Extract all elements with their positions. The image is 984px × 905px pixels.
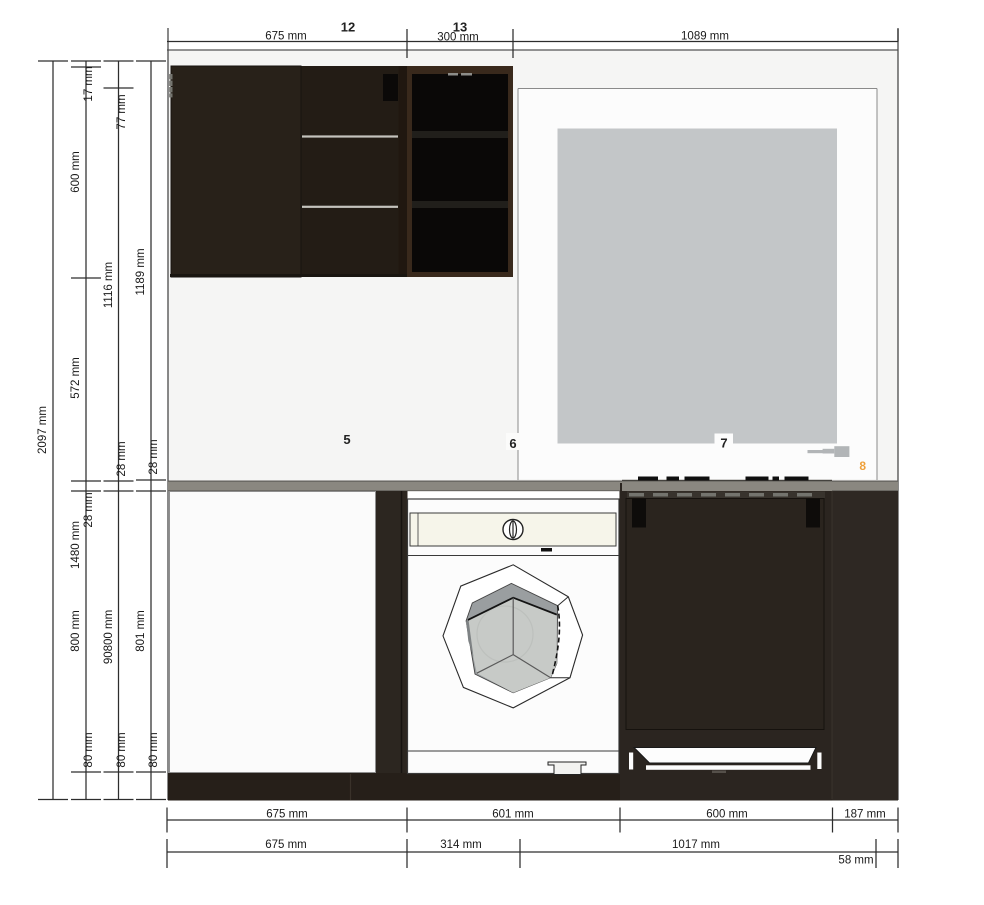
svg-text:28 mm: 28 mm [148, 439, 160, 474]
svg-text:6: 6 [509, 436, 516, 451]
svg-text:600 mm: 600 mm [706, 809, 748, 821]
svg-text:801 mm: 801 mm [135, 610, 147, 652]
svg-text:80 mm: 80 mm [148, 732, 160, 767]
svg-text:7: 7 [720, 436, 727, 451]
svg-text:675 mm: 675 mm [265, 31, 307, 43]
svg-text:77 mm: 77 mm [116, 94, 128, 129]
svg-text:12: 12 [341, 20, 355, 35]
svg-text:1480 mm: 1480 mm [70, 521, 82, 569]
svg-text:1089 mm: 1089 mm [681, 31, 729, 43]
svg-text:80 mm: 80 mm [116, 732, 128, 767]
svg-text:187 mm: 187 mm [844, 809, 886, 821]
svg-text:8: 8 [859, 459, 866, 473]
svg-text:2097 mm: 2097 mm [37, 406, 49, 454]
svg-text:28 mm: 28 mm [116, 441, 128, 476]
svg-text:5: 5 [343, 432, 350, 447]
svg-text:1189 mm: 1189 mm [135, 248, 147, 295]
svg-text:675 mm: 675 mm [265, 839, 307, 851]
svg-text:80 mm: 80 mm [83, 732, 95, 767]
svg-text:17 mm: 17 mm [83, 66, 95, 101]
svg-text:13: 13 [453, 20, 467, 35]
svg-text:600 mm: 600 mm [70, 151, 82, 193]
svg-text:572 mm: 572 mm [70, 357, 82, 399]
svg-text:1017 mm: 1017 mm [672, 839, 720, 851]
svg-text:314 mm: 314 mm [440, 839, 482, 851]
svg-text:28 mm: 28 mm [83, 492, 95, 527]
svg-text:90800 mm: 90800 mm [103, 610, 115, 664]
svg-text:675 mm: 675 mm [266, 809, 308, 821]
svg-text:1116 mm: 1116 mm [103, 262, 115, 308]
svg-text:601 mm: 601 mm [492, 809, 534, 821]
svg-text:58 mm: 58 mm [838, 855, 873, 867]
svg-text:800 mm: 800 mm [70, 610, 82, 652]
